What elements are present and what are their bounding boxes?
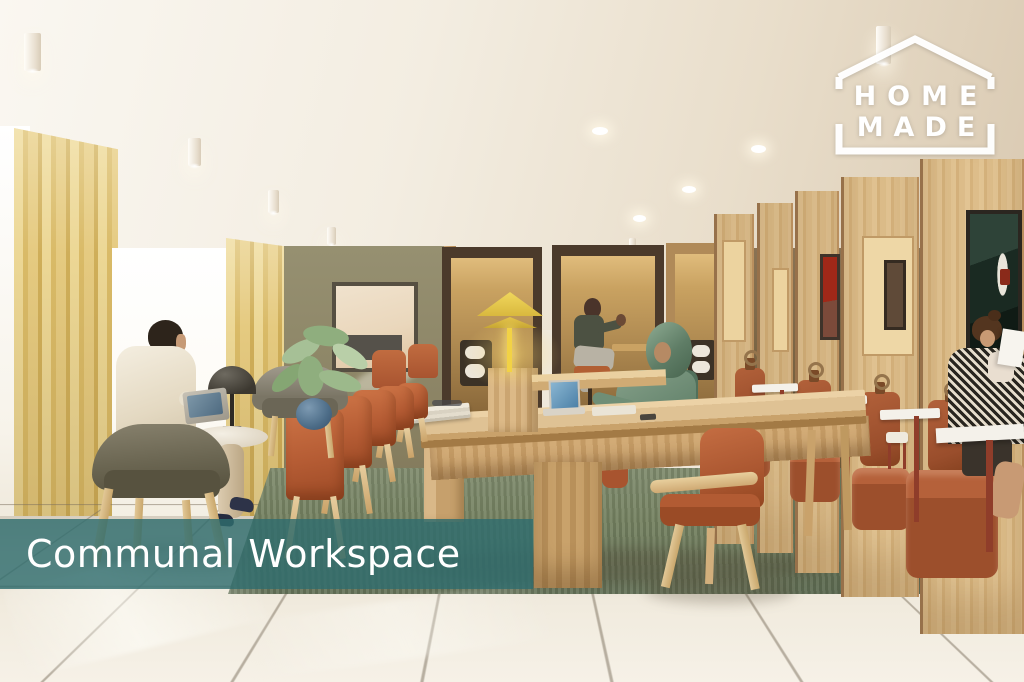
table-accessory (432, 400, 462, 406)
stool (886, 432, 908, 443)
recessed-light (751, 145, 766, 153)
papers (997, 328, 1024, 367)
recessed-light (682, 186, 696, 193)
lamp-glow (462, 320, 562, 390)
far-side-chair (408, 344, 438, 378)
communal-workspace-photo: Communal Workspace HOME MADE (0, 0, 1024, 682)
far-side-chair (372, 350, 406, 388)
lounge-chair (104, 470, 220, 498)
laptop (548, 379, 580, 410)
woman-in-hijab (654, 342, 671, 363)
laptop-screen (187, 392, 223, 418)
logo-word-made: MADE (857, 112, 986, 143)
ceiling-spotlight (268, 190, 279, 213)
caption-band: Communal Workspace (0, 519, 533, 589)
woman-reading (988, 310, 1001, 321)
booth-table (880, 408, 940, 420)
booth-table (752, 383, 798, 393)
table-lamp (507, 328, 512, 372)
partition-artwork (820, 254, 840, 340)
recessed-light (592, 127, 608, 135)
table-leg (914, 416, 919, 522)
home-made-logo: HOME MADE (830, 30, 1000, 160)
logo-word-home: HOME (854, 81, 989, 112)
table-pedestal (534, 462, 602, 588)
recessed-light (633, 215, 646, 222)
bench-seat (906, 470, 998, 578)
logo-roof (839, 39, 991, 77)
woman-reading (980, 330, 995, 347)
bench-seat (852, 468, 910, 530)
ceiling-spotlight (24, 33, 41, 71)
phone (640, 414, 656, 421)
ceiling-spotlight (327, 227, 336, 245)
partition-inset-panel (772, 268, 789, 352)
armchair (660, 494, 760, 526)
plant-pot (296, 398, 332, 430)
table-leg (986, 440, 993, 552)
partition-inset-panel (722, 240, 746, 342)
caption-text: Communal Workspace (26, 532, 461, 576)
ceiling-spotlight (188, 138, 201, 166)
person-in-booth (616, 314, 626, 326)
partition-artwork (884, 260, 906, 330)
desk-lamp (230, 394, 234, 428)
